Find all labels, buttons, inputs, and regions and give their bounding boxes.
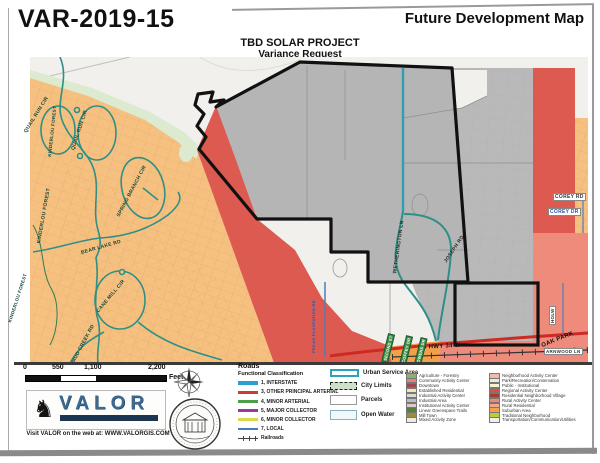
railroad-label: Railroads [261,435,284,441]
road-class-swatch [238,400,258,403]
valor-logo-text: VALOR [59,393,149,415]
street-label: PECAN PLANTATION RD [311,300,316,353]
scale-tick: 1,100 [84,364,102,371]
legend-row: 4, MINOR ARTERIAL [238,399,333,405]
county-seal [168,396,222,452]
landuse-swatch [406,417,417,422]
road-class-label: 3, OTHER PRINCIPAL ARTERIAL [261,389,338,395]
legend-row: Linear Greenspace Trails [406,408,502,412]
railroad-swatch [238,436,258,441]
legend-row: Transportation/Communication/Utilities [489,418,585,422]
area-label: City Limits [361,383,392,389]
legend-row: 1, INTERSTATE [238,380,333,386]
road-class-label: 5, MAJOR COLLECTOR [261,408,317,414]
scale-tick: 0 [23,364,27,371]
legend-row: Regional Activity Center [489,389,585,393]
valor-tagline-bar [60,415,158,421]
valor-logo: ♞ VALOR [26,390,166,430]
road-class-label: 6, MINOR COLLECTOR [261,417,316,423]
road-class-swatch [238,381,258,385]
legend-row: Community Activity Center [406,379,502,383]
road-class-swatch [238,428,258,430]
area-label: Parcels [361,397,382,403]
legend-row: Traditional Neighborhood [489,413,585,417]
legend-row: Suburban Area [489,408,585,412]
street-label: ARNWOOD LN [544,348,583,355]
urban-service-area-swatch [330,369,359,377]
legend-row: Downtown [406,384,502,388]
legend-row: Park/Recreation/Conservation [489,379,585,383]
area-label: Open Water [361,412,394,418]
legend-row: Institutional Activity Center [406,403,502,407]
scale-tick: 2,200 [148,364,166,371]
scale-bar-segment [61,376,96,381]
valor-web-line[interactable]: Visit VALOR on the web at: WWW.VALORGIS.… [18,431,178,437]
legend-row: Rural Activity Center [489,398,585,402]
roads-legend-title: Roads [238,363,333,370]
scanned-map-page: VAR-2019-15 Future Development Map TBD S… [0,0,600,463]
legend-row: Residential Neighborhood Village [489,394,585,398]
legend-row: 6, MINOR COLLECTOR [238,417,333,423]
roads-legend: Roads Functional Classification 1, INTER… [238,363,333,441]
road-class-label: 7, LOCAL [261,426,284,432]
landuse-swatch [489,417,500,422]
scale-bar [25,375,167,382]
open-water-swatch [330,410,357,420]
legend-row: 5, MAJOR COLLECTOR [238,408,333,414]
road-class-swatch [238,418,258,421]
legend-row: Mixed Activity Zone [406,418,502,422]
street-label: HOLW [549,306,556,325]
roads-legend-subtitle: Functional Classification [238,371,333,377]
road-class-swatch [238,391,258,394]
street-label: COREY DR [548,208,581,216]
scale-tick: 550 [52,364,64,371]
landuse-legend-col1: Agriculture - Forestry Community Activit… [406,374,502,422]
legend-row: Public - Institutional [489,384,585,388]
legend-row: Agriculture - Forestry [406,374,502,378]
scale-bar-segment [96,376,166,381]
parcels-swatch [330,395,357,405]
valor-logo-icon: ♞ [33,395,55,424]
scale-bar-segment [26,376,61,381]
road-class-swatch [238,409,258,412]
landuse-label: Mixed Activity Zone [419,417,456,422]
landuse-label: Transportation/Communication/Utilities [502,417,576,422]
road-class-label: 4, MINOR ARTERIAL [261,399,310,405]
legend-row: Neighborhood Activity Center [489,374,585,378]
city-limits-swatch [330,382,357,390]
legend-row: Rural Residential [489,403,585,407]
legend-row: 3, OTHER PRINCIPAL ARTERIAL [238,389,333,395]
legend-row: Industrial Activity Center [406,394,502,398]
road-class-label: 1, INTERSTATE [261,380,297,386]
legend-row: Established Residential [406,389,502,393]
legend-row: 7, LOCAL [238,426,333,432]
legend-row: Railroads [238,435,333,441]
legend-row: Industrial Area [406,398,502,402]
landuse-legend-col2: Neighborhood Activity Center Park/Recrea… [489,374,585,422]
compass-rose [172,363,206,399]
street-label: COREY RD [553,193,586,201]
legend-row: Mill Town [406,413,502,417]
